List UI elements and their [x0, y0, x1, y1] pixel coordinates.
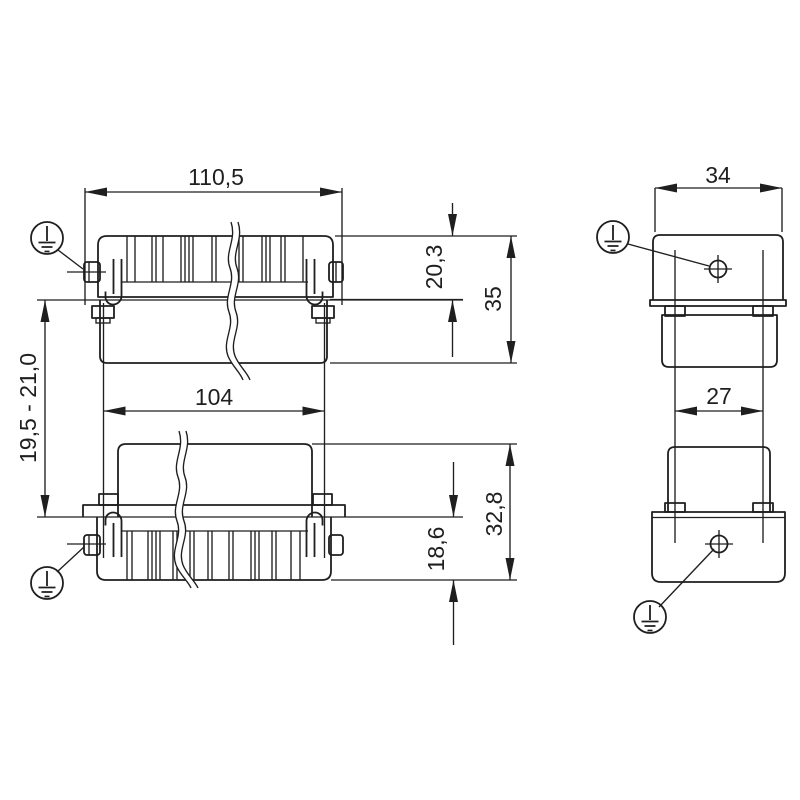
pe-ground-icon: [597, 221, 629, 253]
dim-label-panel-thickness: 19,5 - 21,0: [15, 353, 41, 463]
base-lever-right: [307, 513, 323, 558]
pe-ground-symbol-top-left: [31, 222, 106, 272]
pe-ground-icon: [634, 601, 666, 633]
leader-line: [57, 544, 106, 572]
pe-ground-symbol-side-bottom: [634, 549, 714, 633]
hood-ribs: [122, 236, 308, 282]
pe-ground-symbol-bottom-left: [31, 544, 106, 599]
dim-panel-thickness: 19,5 - 21,0: [15, 300, 50, 517]
leader-line: [659, 549, 714, 607]
dim-side-overall-width: 34: [655, 162, 782, 232]
dim-label-overall-width: 110,5: [188, 164, 244, 190]
dim-label-bottom-total-height: 32,8: [481, 492, 507, 537]
leader-line: [628, 244, 709, 266]
dim-label-side-overall-width: 34: [705, 162, 731, 188]
dim-label-bottom-height: 18,6: [423, 527, 449, 572]
technical-drawing: 110,5 104 20,3 35 19,5 - 21,0 32,8 18,6: [0, 0, 800, 800]
hood-lower-body: [100, 300, 327, 363]
base-hat-right: [313, 494, 332, 505]
side-collar: [662, 315, 777, 367]
dim-bottom-height: 18,6: [423, 462, 458, 645]
flange-foot-right: [312, 306, 334, 318]
dim-overall-width: 110,5: [85, 164, 342, 305]
base-ribs: [122, 531, 308, 580]
base-lever-left: [106, 513, 122, 558]
pe-ground-icon: [31, 222, 63, 254]
dim-side-collar-width: 27: [675, 383, 763, 416]
break-squiggle-top: [226, 222, 250, 380]
dim-label-insert-width: 104: [195, 384, 234, 410]
base-hat-left: [99, 494, 118, 505]
dim-label-hood-height: 20,3: [421, 245, 447, 290]
dim-label-side-collar-width: 27: [706, 383, 732, 409]
front-view-bottom-part: [83, 444, 345, 580]
drawing-canvas: 110,5 104 20,3 35 19,5 - 21,0 32,8 18,6: [0, 0, 800, 800]
dim-label-top-total-height: 35: [480, 286, 506, 312]
base-rim: [83, 505, 345, 517]
insert-body: [118, 444, 312, 517]
dim-hood-height: 20,3: [330, 203, 517, 357]
crosshair-marker-top: [704, 255, 732, 283]
dim-insert-width: 104: [104, 303, 325, 558]
